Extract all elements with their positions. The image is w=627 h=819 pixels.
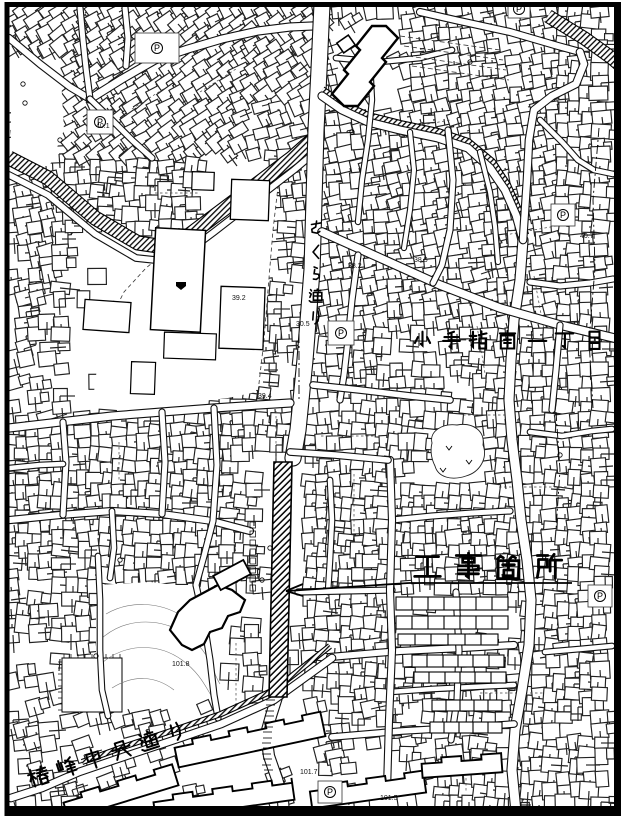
svg-text:P: P [338,328,344,338]
svg-text:P: P [597,591,603,601]
svg-text:P: P [154,43,160,53]
svg-text:38.2: 38.2 [348,263,362,270]
svg-text:101.7: 101.7 [300,769,318,776]
svg-text:39.2: 39.2 [232,295,246,302]
svg-text:101.5: 101.5 [380,795,398,802]
svg-text:P: P [327,787,333,797]
svg-text:P: P [560,210,566,220]
svg-text:39.4: 39.4 [258,393,272,400]
svg-text:40.7: 40.7 [580,233,594,240]
svg-text:30.5: 30.5 [296,321,310,328]
svg-text:101.8: 101.8 [172,661,190,668]
svg-text:40.1: 40.1 [96,123,110,130]
svg-text:38.5: 38.5 [414,257,428,264]
